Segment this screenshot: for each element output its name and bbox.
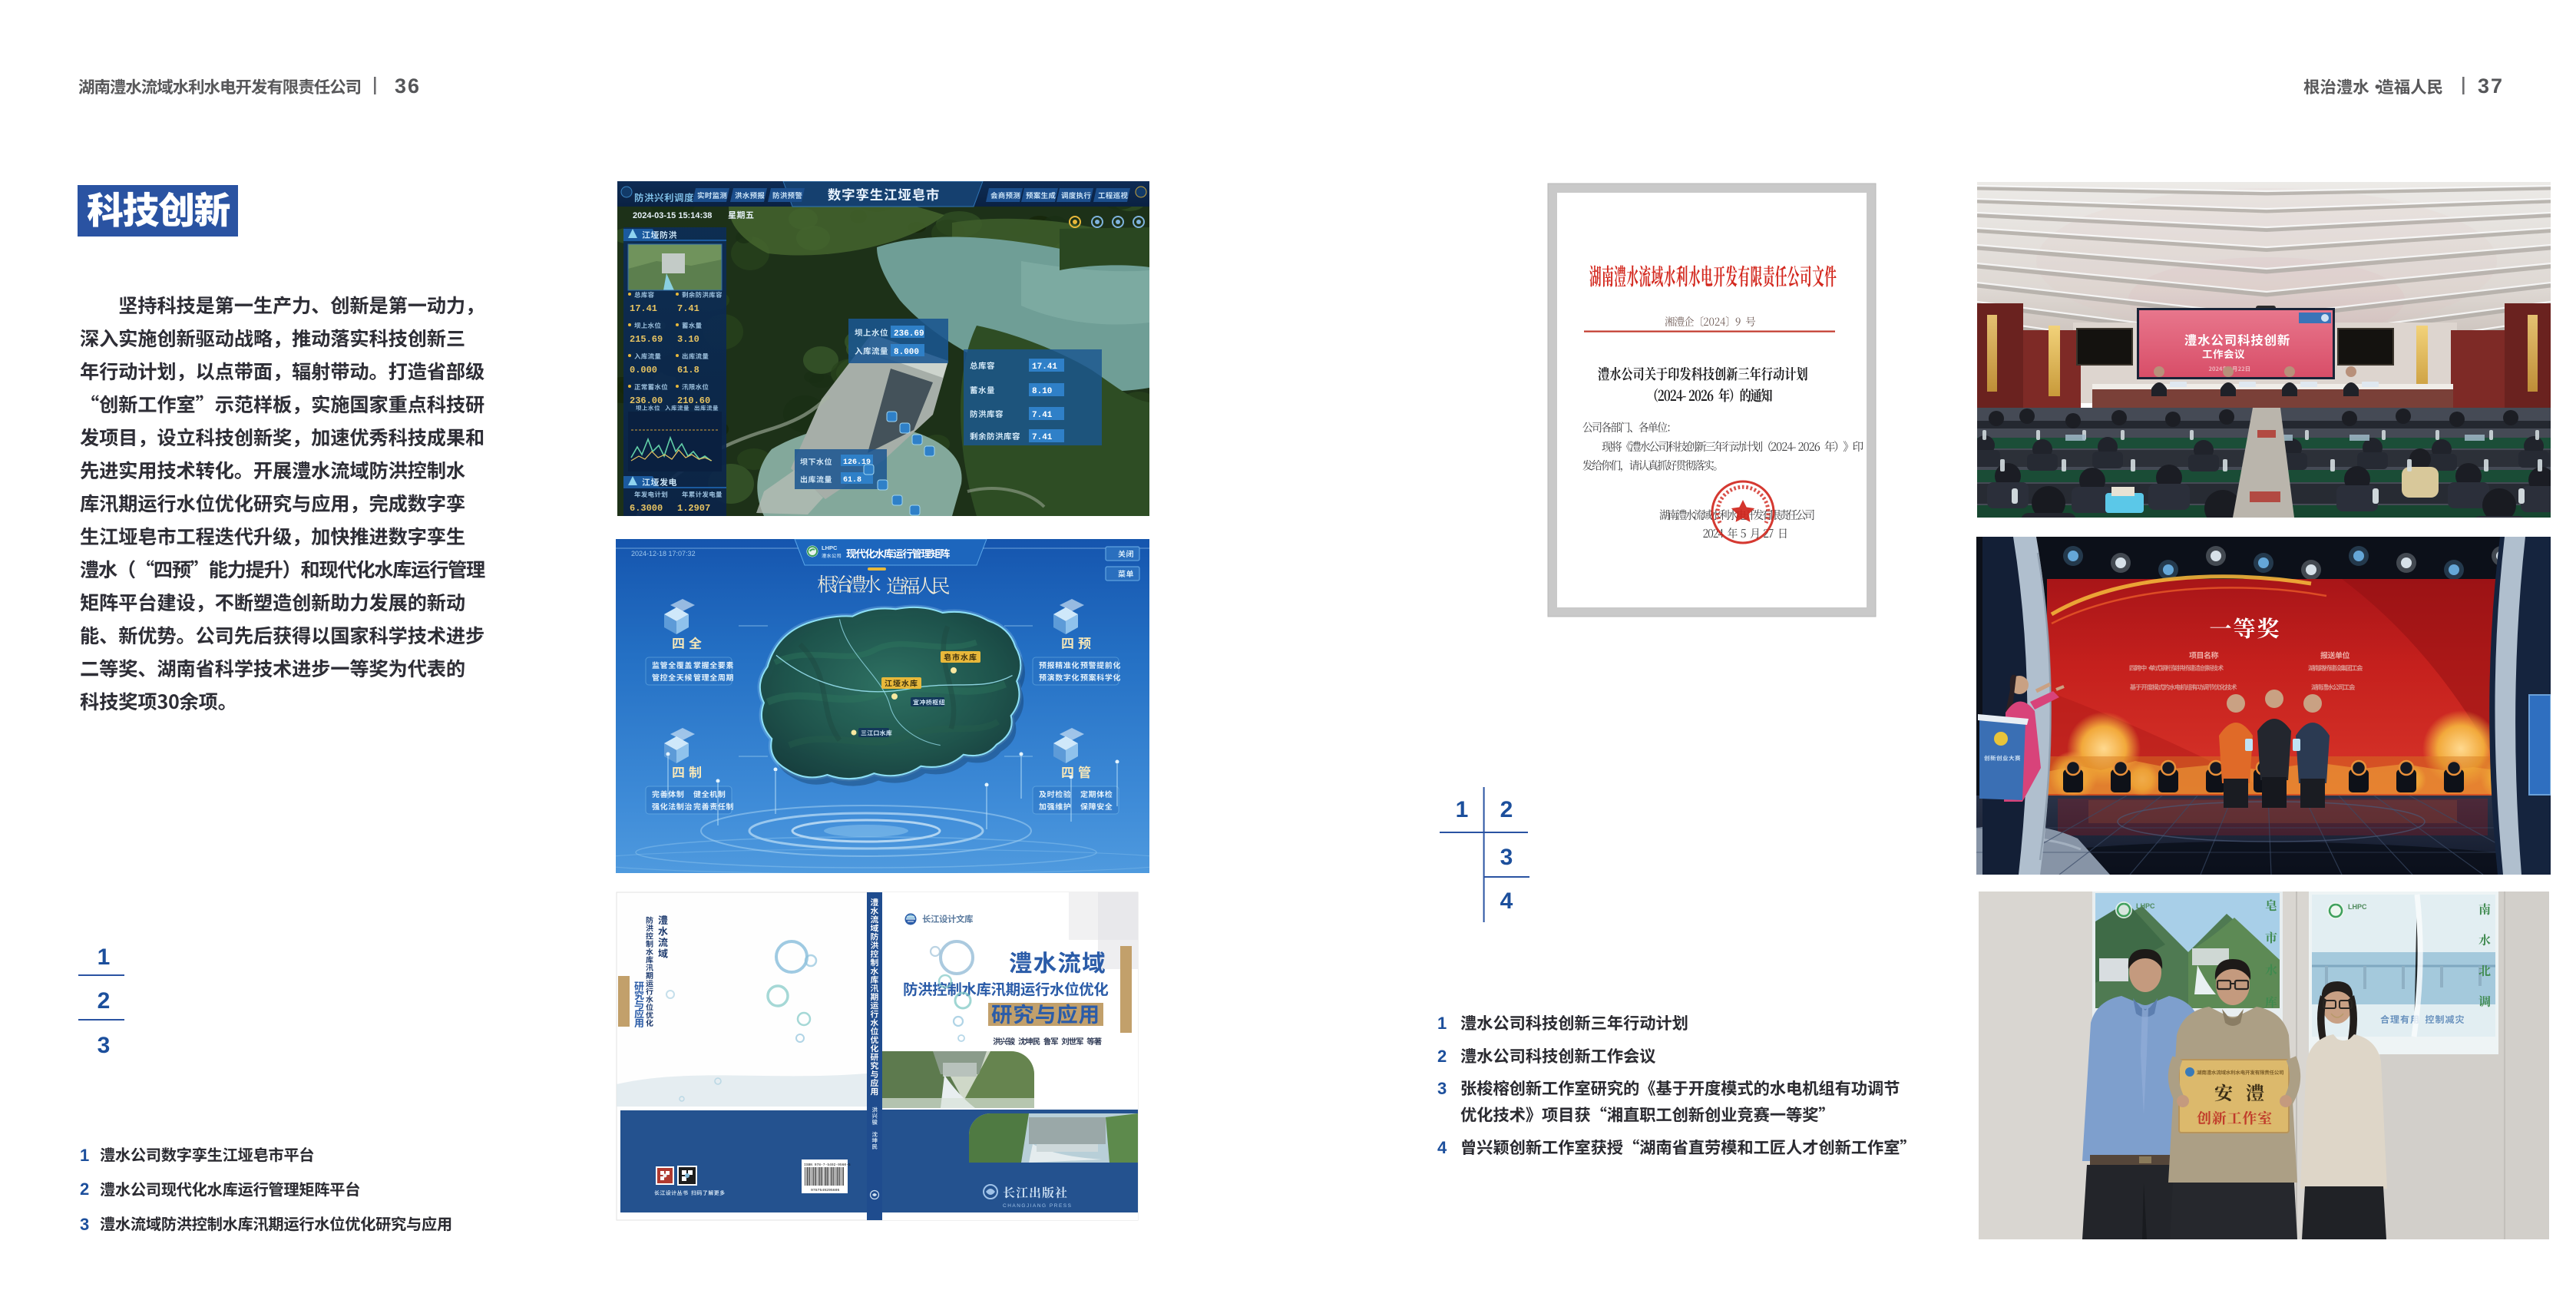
svg-text:2: 2 bbox=[80, 1179, 89, 1199]
svg-text:1: 1 bbox=[1456, 797, 1469, 822]
svg-text:8.000: 8.000 bbox=[894, 348, 919, 357]
svg-text:ISBN 978-7-5492-9560-5: ISBN 978-7-5492-9560-5 bbox=[804, 1163, 851, 1167]
svg-text:17.41: 17.41 bbox=[1032, 362, 1057, 372]
svg-text:236.69: 236.69 bbox=[894, 329, 924, 339]
svg-text:0.000: 0.000 bbox=[630, 365, 657, 375]
svg-text:2024-03-15 15:14:38: 2024-03-15 15:14:38 bbox=[633, 211, 712, 220]
svg-text:LHPC: LHPC bbox=[2136, 902, 2155, 910]
svg-text:3: 3 bbox=[1437, 1079, 1447, 1098]
svg-text:17.41: 17.41 bbox=[630, 303, 657, 314]
svg-text:2: 2 bbox=[1437, 1047, 1447, 1066]
svg-text:4: 4 bbox=[1437, 1138, 1447, 1157]
svg-text:3: 3 bbox=[98, 1033, 111, 1058]
svg-text:LHPC: LHPC bbox=[822, 544, 838, 551]
svg-text:36: 36 bbox=[395, 74, 421, 98]
svg-text:3.10: 3.10 bbox=[677, 334, 699, 345]
svg-text:1: 1 bbox=[1437, 1014, 1447, 1033]
svg-text:7.41: 7.41 bbox=[677, 303, 699, 314]
svg-text:CHANGJIANG PRESS: CHANGJIANG PRESS bbox=[1003, 1203, 1072, 1209]
svg-text:1: 1 bbox=[80, 1146, 89, 1165]
svg-text:1.2907: 1.2907 bbox=[677, 503, 710, 514]
svg-text:37: 37 bbox=[2478, 74, 2504, 98]
svg-text:61.8: 61.8 bbox=[843, 476, 861, 485]
svg-text:2: 2 bbox=[1500, 797, 1513, 822]
svg-text:3: 3 bbox=[80, 1215, 89, 1234]
svg-text:6.3000: 6.3000 bbox=[630, 503, 663, 514]
svg-text:210.60: 210.60 bbox=[677, 395, 710, 406]
svg-text:236.00: 236.00 bbox=[630, 395, 663, 406]
svg-text:7.41: 7.41 bbox=[1032, 433, 1053, 442]
svg-text:8.10: 8.10 bbox=[1032, 387, 1052, 396]
svg-text:2: 2 bbox=[98, 988, 111, 1014]
svg-text:9787549295605: 9787549295605 bbox=[811, 1188, 840, 1193]
svg-text:215.69: 215.69 bbox=[630, 334, 663, 345]
svg-text:LHPC: LHPC bbox=[2348, 903, 2367, 911]
svg-text:7.41: 7.41 bbox=[1032, 411, 1053, 420]
svg-text:61.8: 61.8 bbox=[677, 365, 699, 375]
svg-text:2024-12-18 17:07:32: 2024-12-18 17:07:32 bbox=[631, 550, 696, 557]
svg-text:1: 1 bbox=[98, 944, 111, 970]
svg-text:4: 4 bbox=[1500, 888, 1513, 914]
svg-text:3: 3 bbox=[1500, 845, 1513, 870]
